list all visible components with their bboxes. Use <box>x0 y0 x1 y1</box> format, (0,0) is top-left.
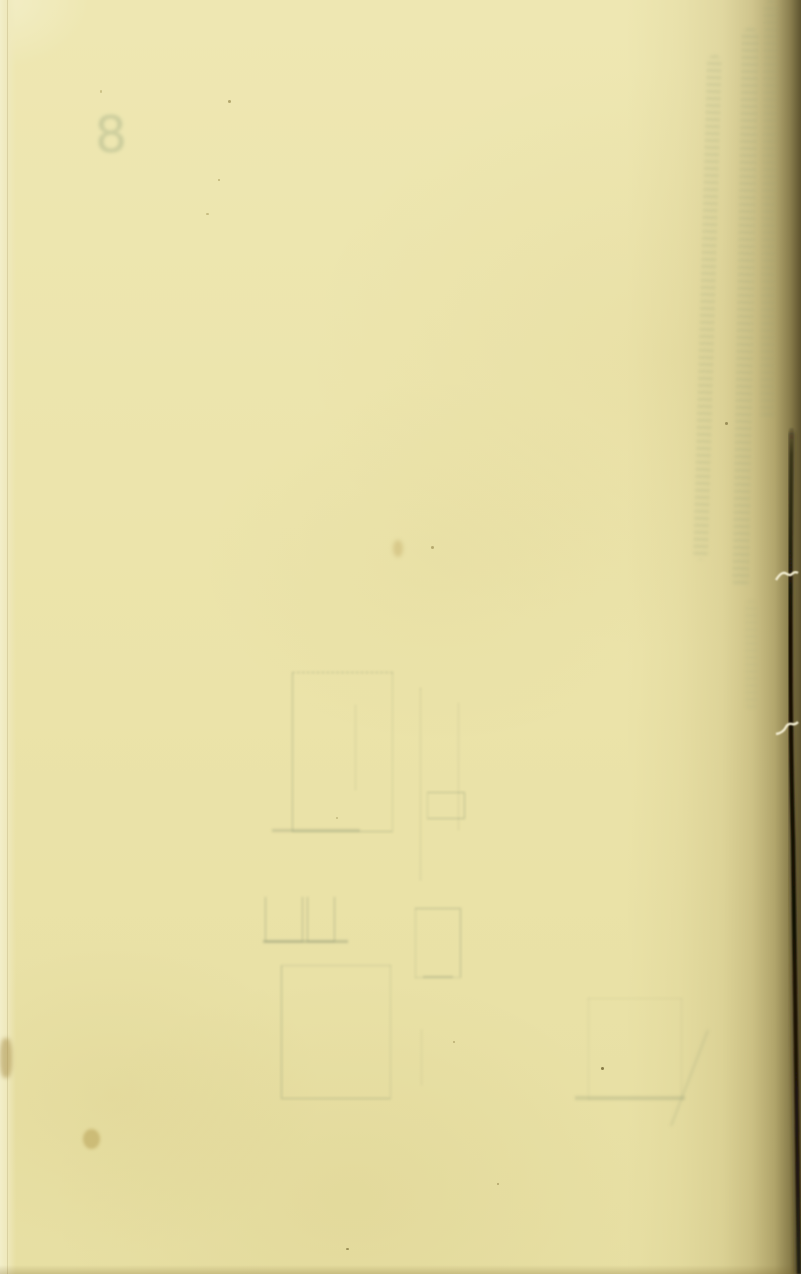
dust-speck <box>218 179 220 181</box>
dust-speck <box>431 546 434 549</box>
dust-speck <box>725 422 728 425</box>
dust-speck-layer <box>0 0 801 1274</box>
dust-speck <box>346 1248 349 1250</box>
dust-speck <box>601 1067 604 1070</box>
dust-speck <box>206 213 209 215</box>
dust-speck <box>497 1183 499 1185</box>
dust-speck <box>453 1041 455 1043</box>
scanned-page: 8 <box>0 0 801 1274</box>
dust-speck <box>336 817 338 819</box>
dust-speck <box>100 90 102 93</box>
dust-speck <box>228 100 231 103</box>
